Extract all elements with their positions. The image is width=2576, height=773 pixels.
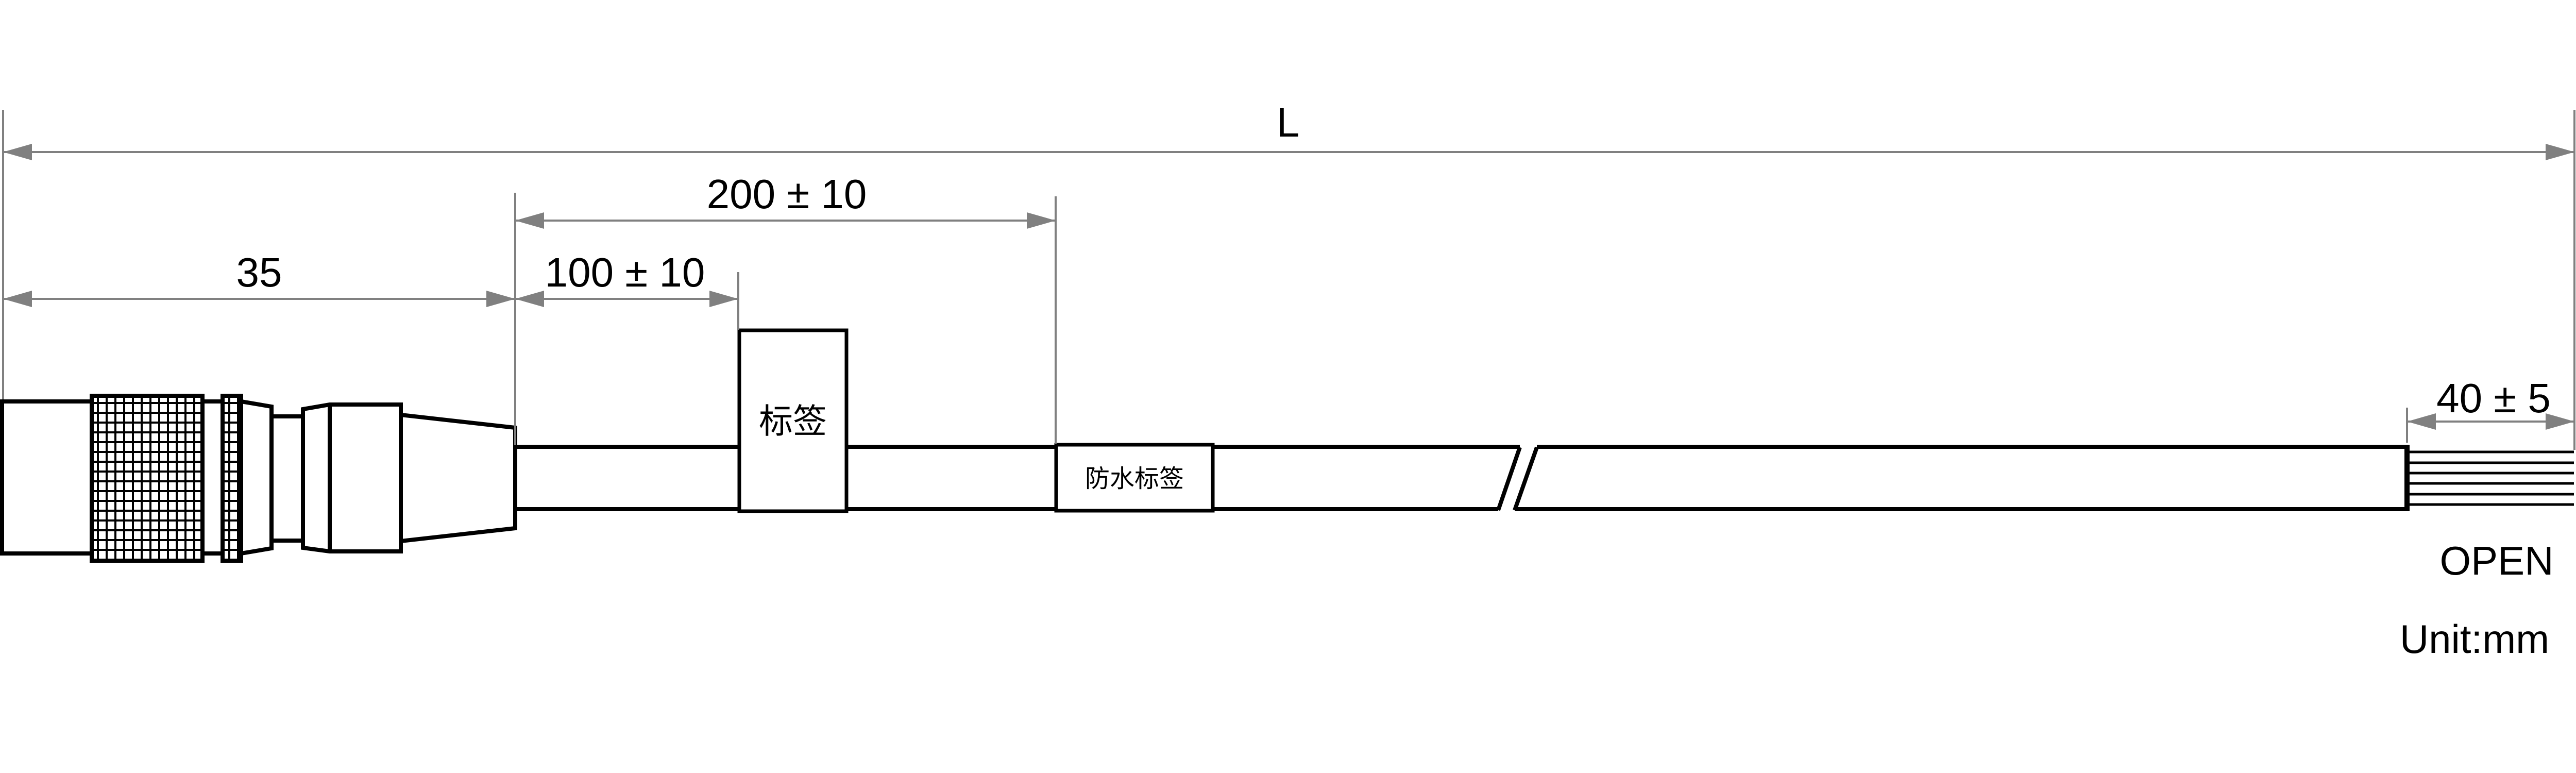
open-end-label: OPEN <box>2439 538 2553 583</box>
dimension-connector-length: 35 <box>3 249 515 307</box>
label-box-text: 标签 <box>759 402 827 440</box>
dim-label-40: 40 ± 5 <box>2436 375 2551 421</box>
arrow-right-icon <box>2546 144 2574 160</box>
connector-knurl-grip-main <box>92 396 202 561</box>
dimension-label-offset: 100 ± 10 <box>515 249 738 307</box>
dim-label-100: 100 ± 10 <box>545 249 705 295</box>
drawing-canvas: 标签 防水标签 L 200 ± 10 100 ± 10 <box>0 0 2576 773</box>
arrow-right-icon <box>486 291 515 307</box>
arrow-left-icon <box>3 144 32 160</box>
connector-plug <box>2 396 515 561</box>
unit-note: Unit:mm <box>2400 616 2549 662</box>
connector-knurl-ring-rear <box>223 396 241 561</box>
connector-strain-relief-cone <box>401 415 515 541</box>
waterproof-label-text: 防水标签 <box>1085 465 1184 493</box>
arrow-left-icon <box>515 291 544 307</box>
extension-lines <box>3 110 2574 450</box>
dim-label-200: 200 ± 10 <box>707 171 867 217</box>
waterproof-label-flag: 防水标签 <box>1056 445 1213 511</box>
wire-leads <box>2407 452 2574 505</box>
connector-collar <box>241 401 272 553</box>
arrow-left-icon <box>3 291 32 307</box>
arrow-right-icon <box>1027 212 1056 229</box>
dim-label-L: L <box>1277 99 1300 145</box>
arrow-right-icon <box>709 291 738 307</box>
cable-assembly-drawing: 标签 防水标签 L 200 ± 10 100 ± 10 <box>0 0 2576 773</box>
connector-front-barrel <box>2 401 92 553</box>
connector-backshell <box>303 405 401 551</box>
arrow-left-icon <box>2407 413 2436 430</box>
dimension-overall-length: L <box>3 99 2574 160</box>
dimension-strip-length: 40 ± 5 <box>2407 375 2574 430</box>
arrow-left-icon <box>515 212 544 229</box>
connector-smooth-ring <box>202 401 223 553</box>
connector-neck <box>272 416 303 541</box>
label-flag: 标签 <box>739 330 846 511</box>
dim-label-35: 35 <box>236 249 282 295</box>
dimension-waterproof-offset: 200 ± 10 <box>515 171 1056 229</box>
